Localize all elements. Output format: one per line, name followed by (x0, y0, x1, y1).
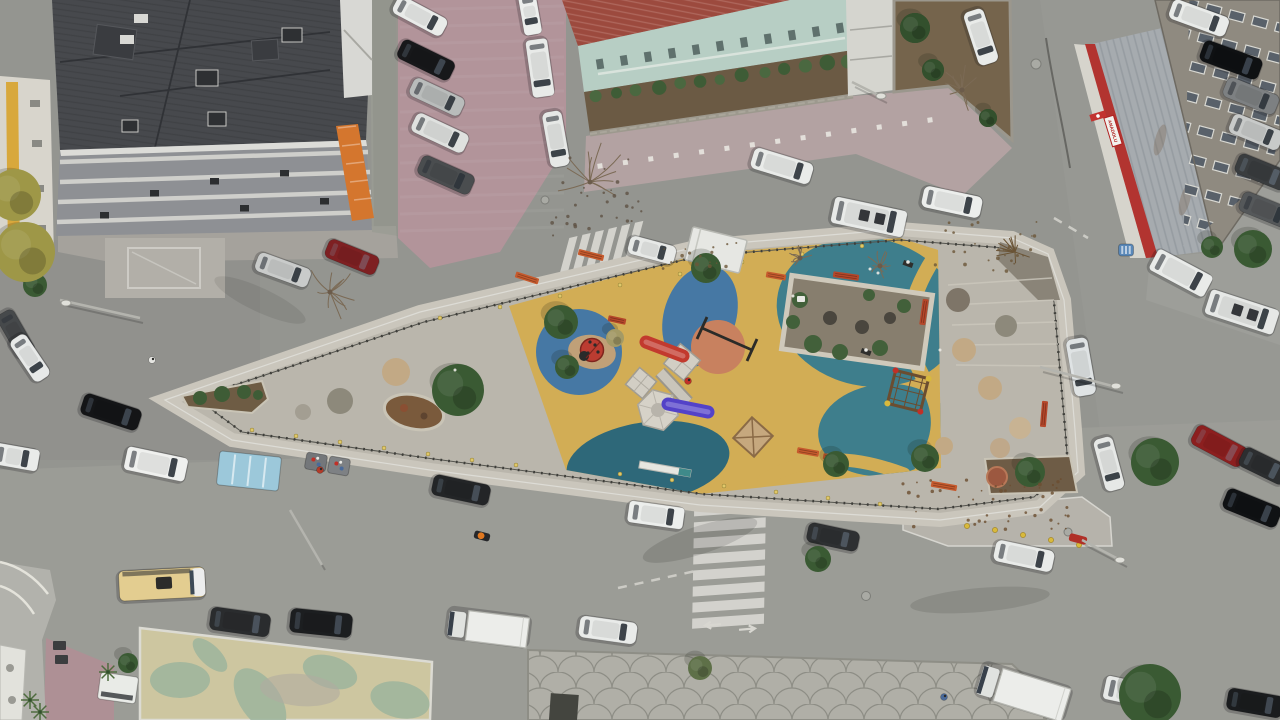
vehicle-bus (115, 566, 207, 605)
blue-container (216, 451, 281, 491)
bare-tree (311, 270, 354, 319)
palm-tree (99, 663, 117, 681)
bin-container (327, 456, 351, 476)
person (317, 467, 324, 474)
blue-container (1119, 244, 1134, 256)
palm-tree (21, 691, 39, 709)
person (941, 694, 948, 701)
person (685, 378, 692, 385)
aerial-drone-photo: ANADOLU (0, 0, 1280, 720)
bin-container (304, 452, 328, 472)
person (149, 357, 156, 364)
aerial-photo-stage: ANADOLU (0, 0, 1280, 720)
